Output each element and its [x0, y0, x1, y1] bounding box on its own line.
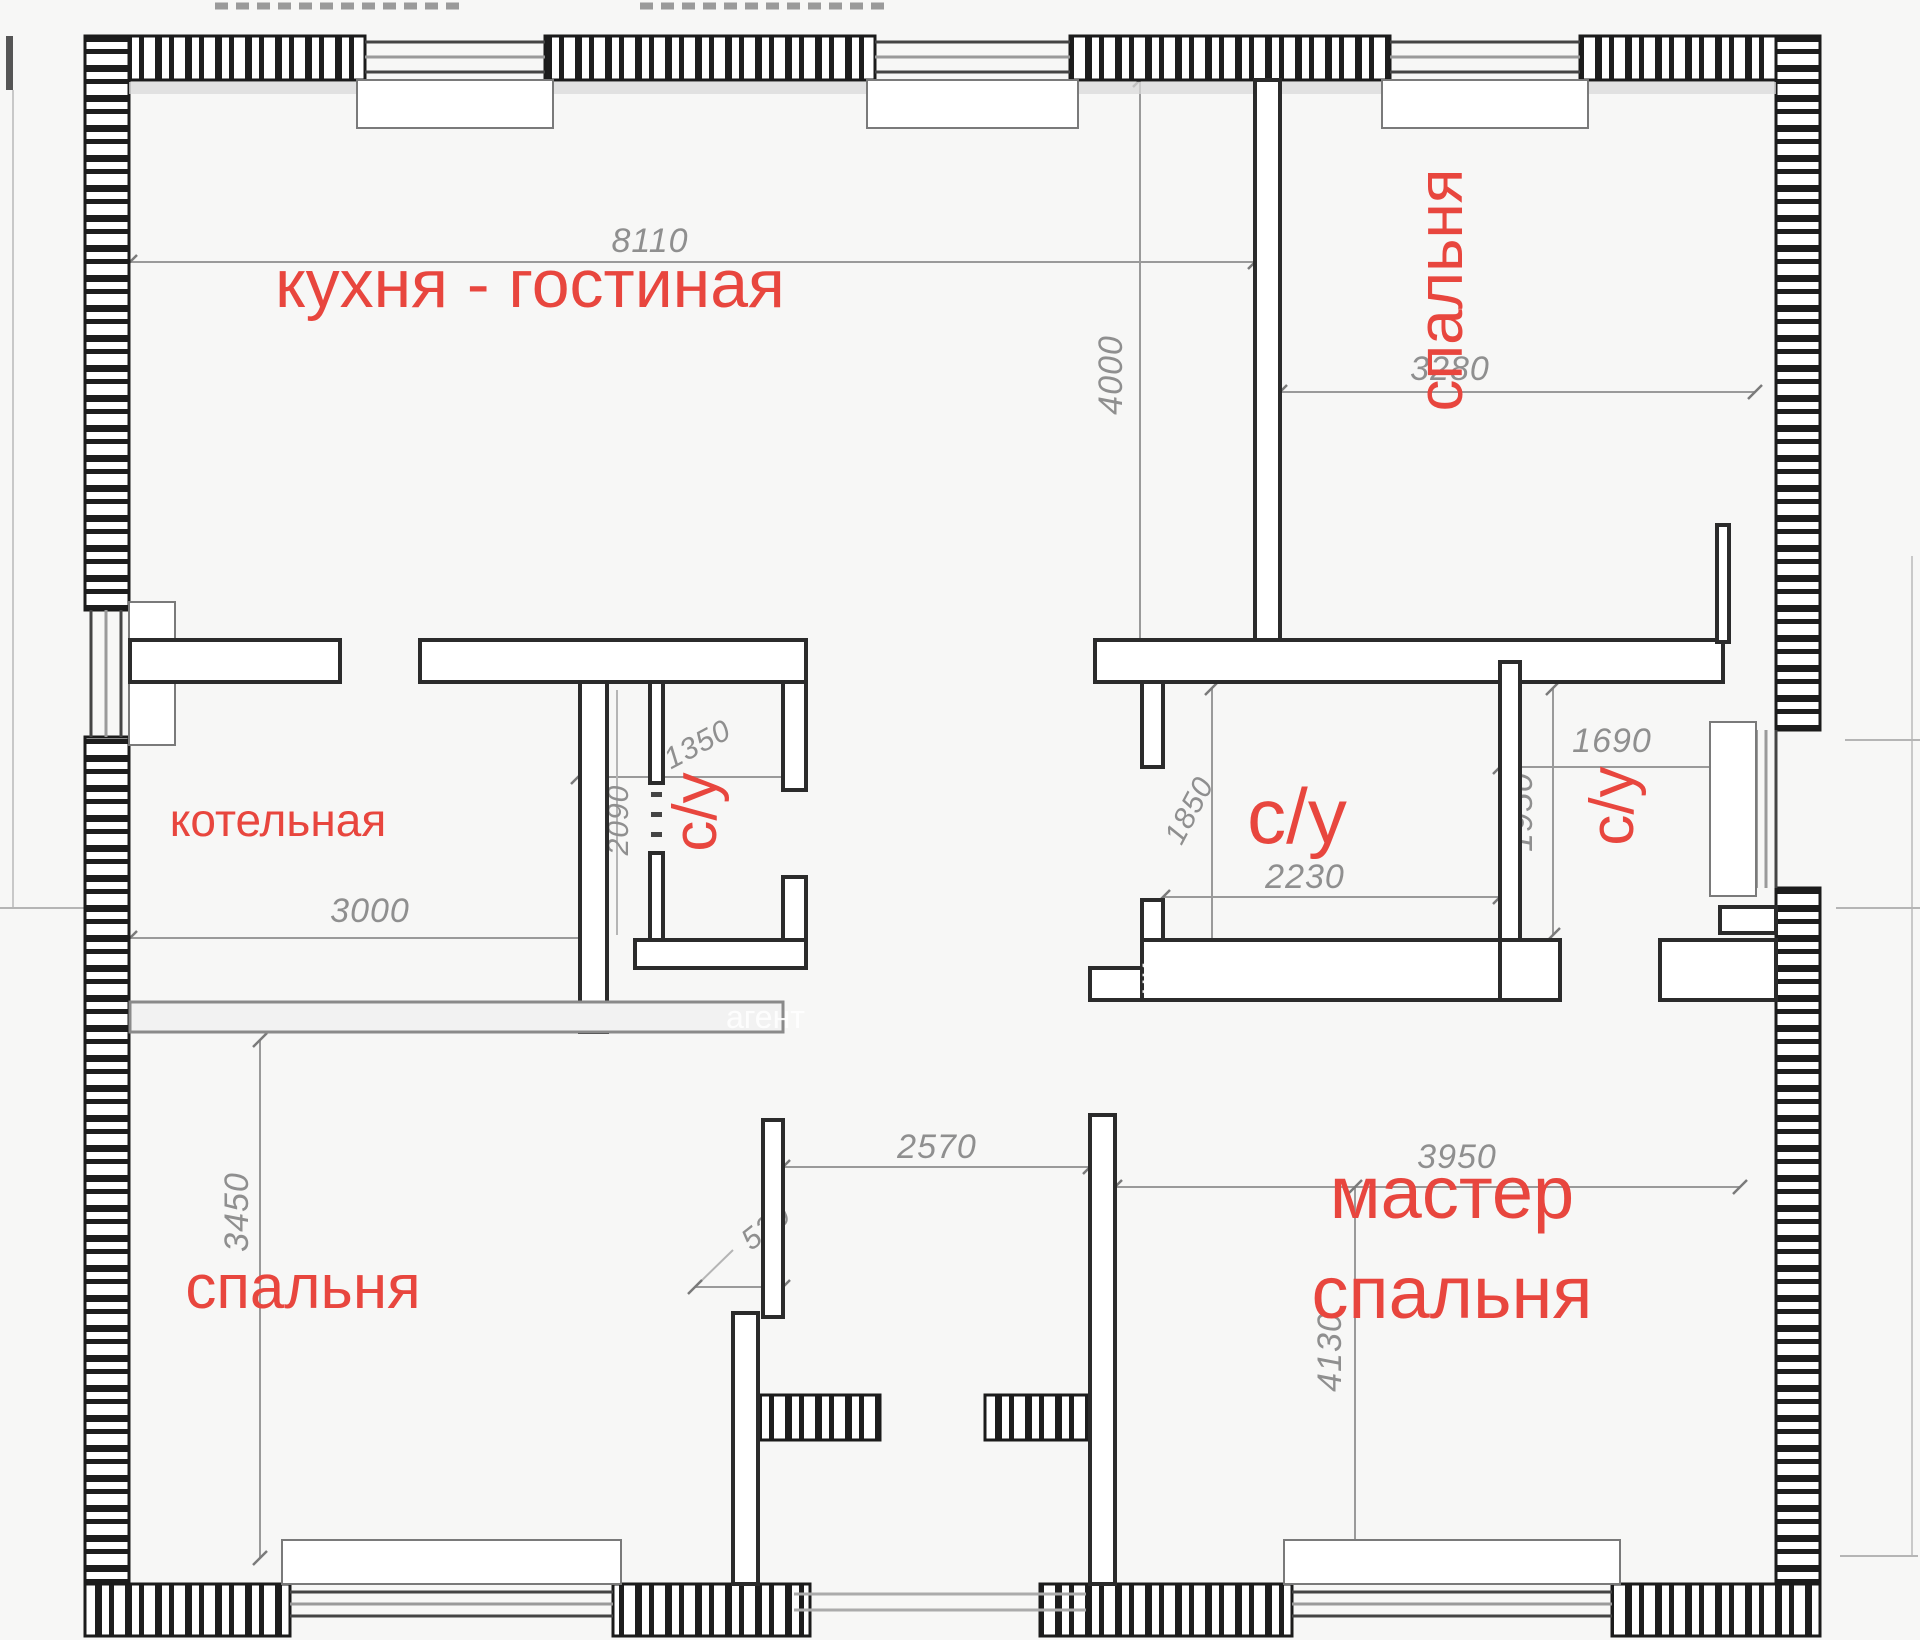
watermark-fragment-2: ни	[1132, 962, 1165, 995]
wall-master-north-3	[1660, 940, 1776, 1000]
room-label-master-line1: мастер	[1330, 1151, 1574, 1234]
wall-bottom-left-1	[85, 1584, 290, 1636]
window-top-2	[867, 42, 1078, 128]
wall-bath-main-west-2	[1142, 900, 1163, 940]
wall-bath-center-east-1	[783, 682, 806, 790]
window-top-1	[357, 42, 553, 128]
wall-top-3	[1070, 36, 1390, 80]
dim-boiler-width: 3000	[330, 892, 410, 930]
wall-master-north-1	[1142, 940, 1500, 1000]
room-label-boiler: котельная	[170, 794, 387, 846]
floor-plan-page: 8110 4000 3280 3000 1350 2090 2230 1850 …	[0, 0, 1920, 1640]
room-label-master-line2: спальня	[1312, 1251, 1593, 1334]
room-label-kitchen-living: кухня - гостиная	[275, 246, 785, 322]
wall-porch-left-leg	[733, 1313, 758, 1584]
wall-right-lower	[1776, 888, 1820, 1635]
wall-bedroom-door-jamb	[1717, 525, 1729, 642]
wall-hall-west	[763, 1120, 783, 1317]
wall-bedroom-bottom-left-top	[130, 1002, 783, 1032]
wall-right-upper	[1776, 36, 1820, 730]
window-top-3	[1382, 42, 1588, 128]
dim-bath-ensuite-width: 1690	[1572, 722, 1652, 760]
wall-boiler-east	[580, 682, 607, 1032]
dim-bedroom-bottom-depth: 3450	[218, 1172, 256, 1252]
wall-bath-center-bottom	[635, 940, 806, 968]
dim-bath-main-width: 2230	[1264, 858, 1345, 896]
wall-right-stub	[1720, 907, 1776, 933]
watermark-fragment-1: агент	[726, 999, 805, 1035]
wall-master-west	[1090, 1115, 1115, 1584]
dim-kitchen-depth: 4000	[1092, 335, 1130, 415]
wall-boiler-top-1	[130, 640, 340, 682]
room-label-bedroom-top-right: спальня	[1404, 169, 1476, 412]
dim-hall-width: 2570	[896, 1128, 977, 1166]
wall-bottom-right-2	[1612, 1584, 1820, 1636]
wall-master-north-2	[1500, 940, 1560, 1000]
wall-bath-center-west-1	[650, 682, 663, 783]
dim-bath-center-width: 1350	[659, 713, 737, 775]
wall-bath-center-east-2	[783, 877, 806, 940]
wall-bath-main-west-1	[1142, 682, 1163, 767]
wall-left-upper	[85, 36, 129, 610]
wall-bottom-left-2	[613, 1584, 810, 1636]
window-bottom-left	[282, 1540, 621, 1616]
wall-boiler-top-2	[420, 640, 806, 682]
window-bottom-right	[1284, 1540, 1620, 1616]
room-label-bathroom-center: с/у	[661, 772, 730, 851]
wall-bath-main-east	[1500, 662, 1520, 940]
page-tick	[6, 36, 13, 90]
wall-top-2	[545, 36, 875, 80]
wall-bath-center-west-2	[650, 853, 663, 940]
wall-left-lower	[85, 737, 129, 1635]
floor-plan-drawing: 8110 4000 3280 3000 1350 2090 2230 1850 …	[0, 0, 1920, 1640]
room-label-bedroom-bottom-left: спальня	[185, 1253, 420, 1322]
wall-bath-block-top	[1095, 640, 1723, 682]
window-right	[1710, 722, 1776, 896]
wall-kitchen-bedroom	[1255, 80, 1280, 642]
room-label-bathroom-ensuite: с/у	[1578, 766, 1647, 845]
room-label-bathroom-main: с/у	[1247, 772, 1347, 860]
